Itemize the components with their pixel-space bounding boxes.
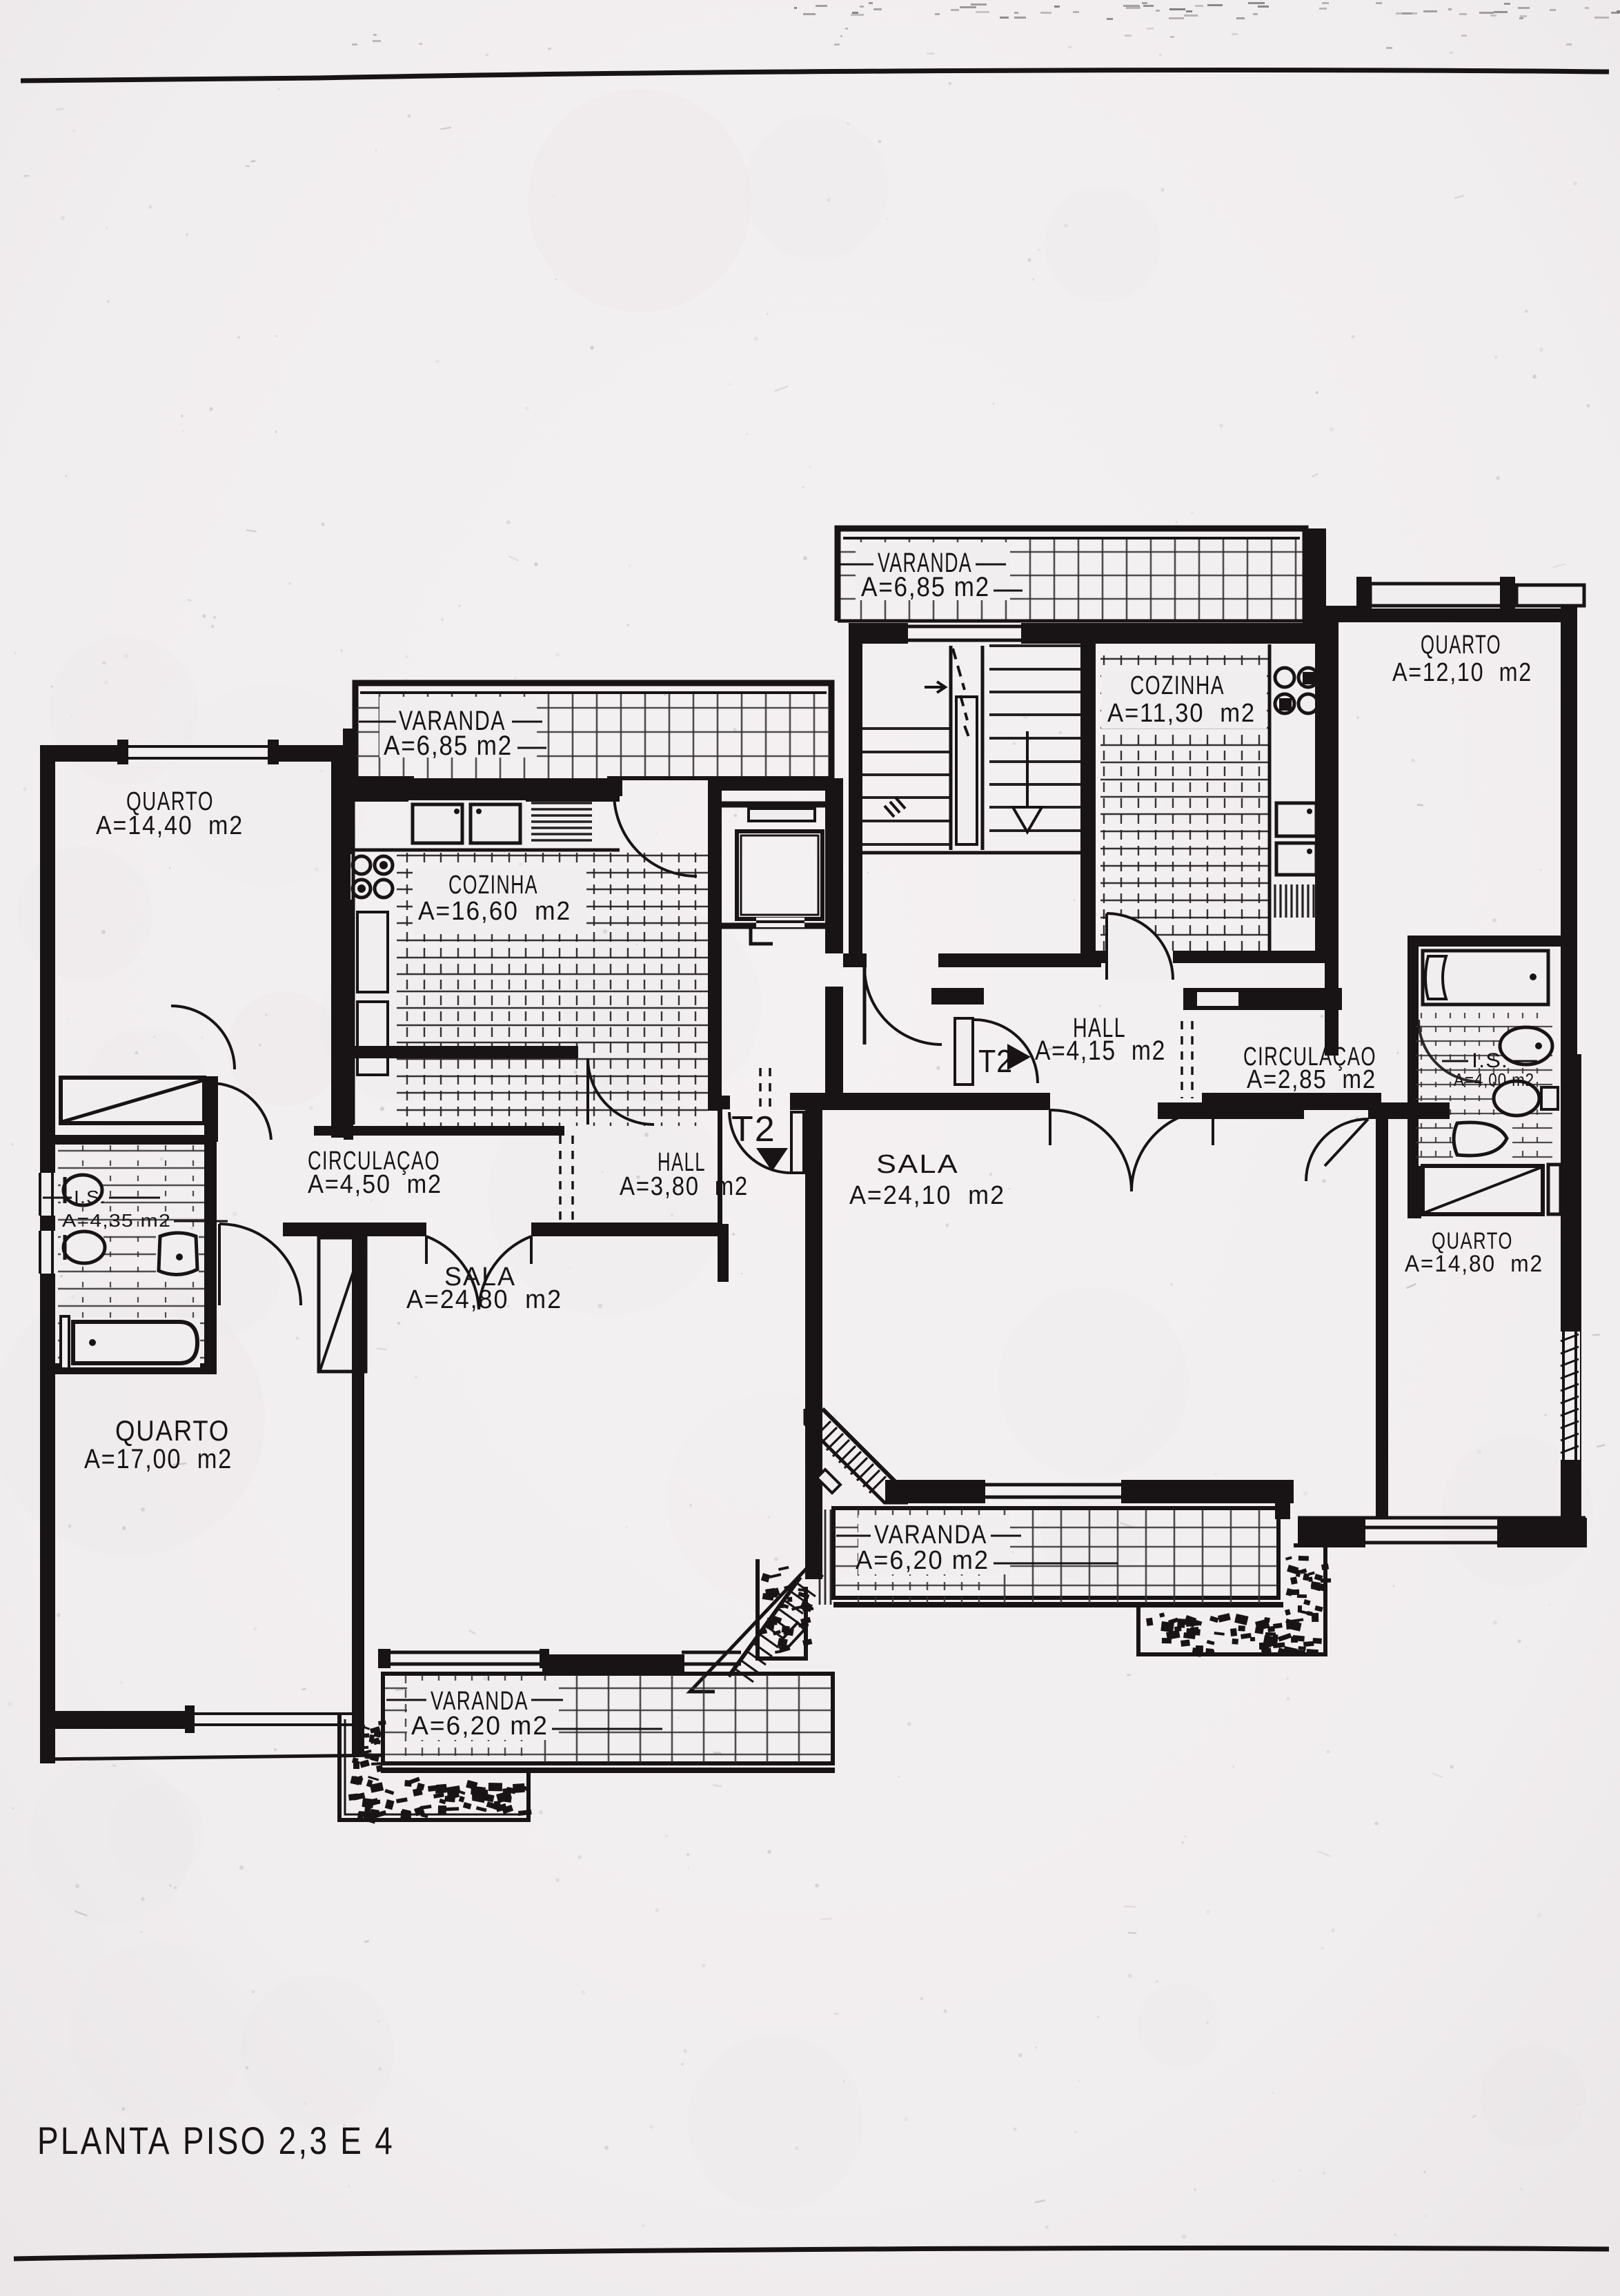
- svg-text:A=24,10 m2: A=24,10 m2: [849, 1181, 1005, 1210]
- svg-text:A=14,80 m2: A=14,80 m2: [1405, 1251, 1543, 1277]
- svg-text:A=16,60 m2: A=16,60 m2: [418, 897, 571, 926]
- svg-text:A=17,00 m2: A=17,00 m2: [84, 1444, 233, 1474]
- svg-text:A=4,15 m2: A=4,15 m2: [1035, 1036, 1166, 1066]
- svg-text:PLANTA PISO 2,3 E 4: PLANTA PISO 2,3 E 4: [37, 2119, 395, 2162]
- svg-text:A=4,50 m2: A=4,50 m2: [308, 1170, 442, 1199]
- svg-text:I.S.: I.S.: [74, 1187, 106, 1207]
- svg-text:A=6,85 m2: A=6,85 m2: [861, 572, 990, 602]
- svg-text:A=6,85 m2: A=6,85 m2: [384, 731, 513, 761]
- svg-text:A=6,20 m2: A=6,20 m2: [856, 1546, 989, 1575]
- svg-text:SALA: SALA: [876, 1150, 959, 1179]
- svg-text:A=4,35 m2: A=4,35 m2: [62, 1210, 171, 1231]
- svg-text:COZINHA: COZINHA: [1130, 671, 1225, 700]
- svg-text:A=14,40 m2: A=14,40 m2: [96, 811, 244, 840]
- svg-text:QUARTO: QUARTO: [1421, 631, 1501, 660]
- svg-text:A=6,20 m2: A=6,20 m2: [411, 1712, 549, 1741]
- svg-text:A=12,10 m2: A=12,10 m2: [1392, 658, 1532, 687]
- svg-text:QUARTO: QUARTO: [115, 1414, 230, 1447]
- svg-text:A=3,80 m2: A=3,80 m2: [620, 1172, 749, 1201]
- svg-text:COZINHA: COZINHA: [448, 871, 538, 900]
- svg-text:A=24,80 m2: A=24,80 m2: [406, 1285, 562, 1314]
- svg-text:A=2,85 m2: A=2,85 m2: [1247, 1065, 1376, 1094]
- svg-text:A=11,30 m2: A=11,30 m2: [1107, 699, 1256, 728]
- svg-text:VARANDA: VARANDA: [874, 1521, 987, 1550]
